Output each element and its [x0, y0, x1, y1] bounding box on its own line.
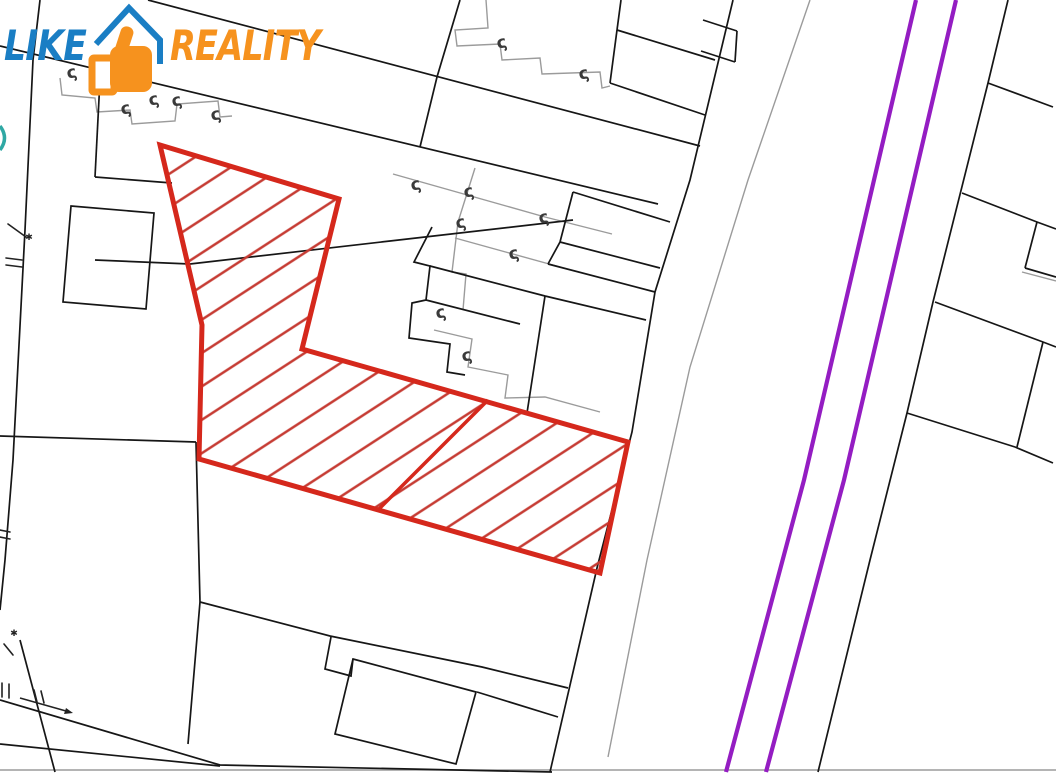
cadastral-map-view: ✱✱ςςςςςςςςςςςςςς LIKE REALITY [0, 0, 1056, 774]
survey-star-mark: ✱ [25, 233, 33, 243]
survey-star-mark: ✱ [10, 629, 18, 639]
cadastral-map-svg: ✱✱ςςςςςςςςςςςςςς [0, 0, 1056, 774]
